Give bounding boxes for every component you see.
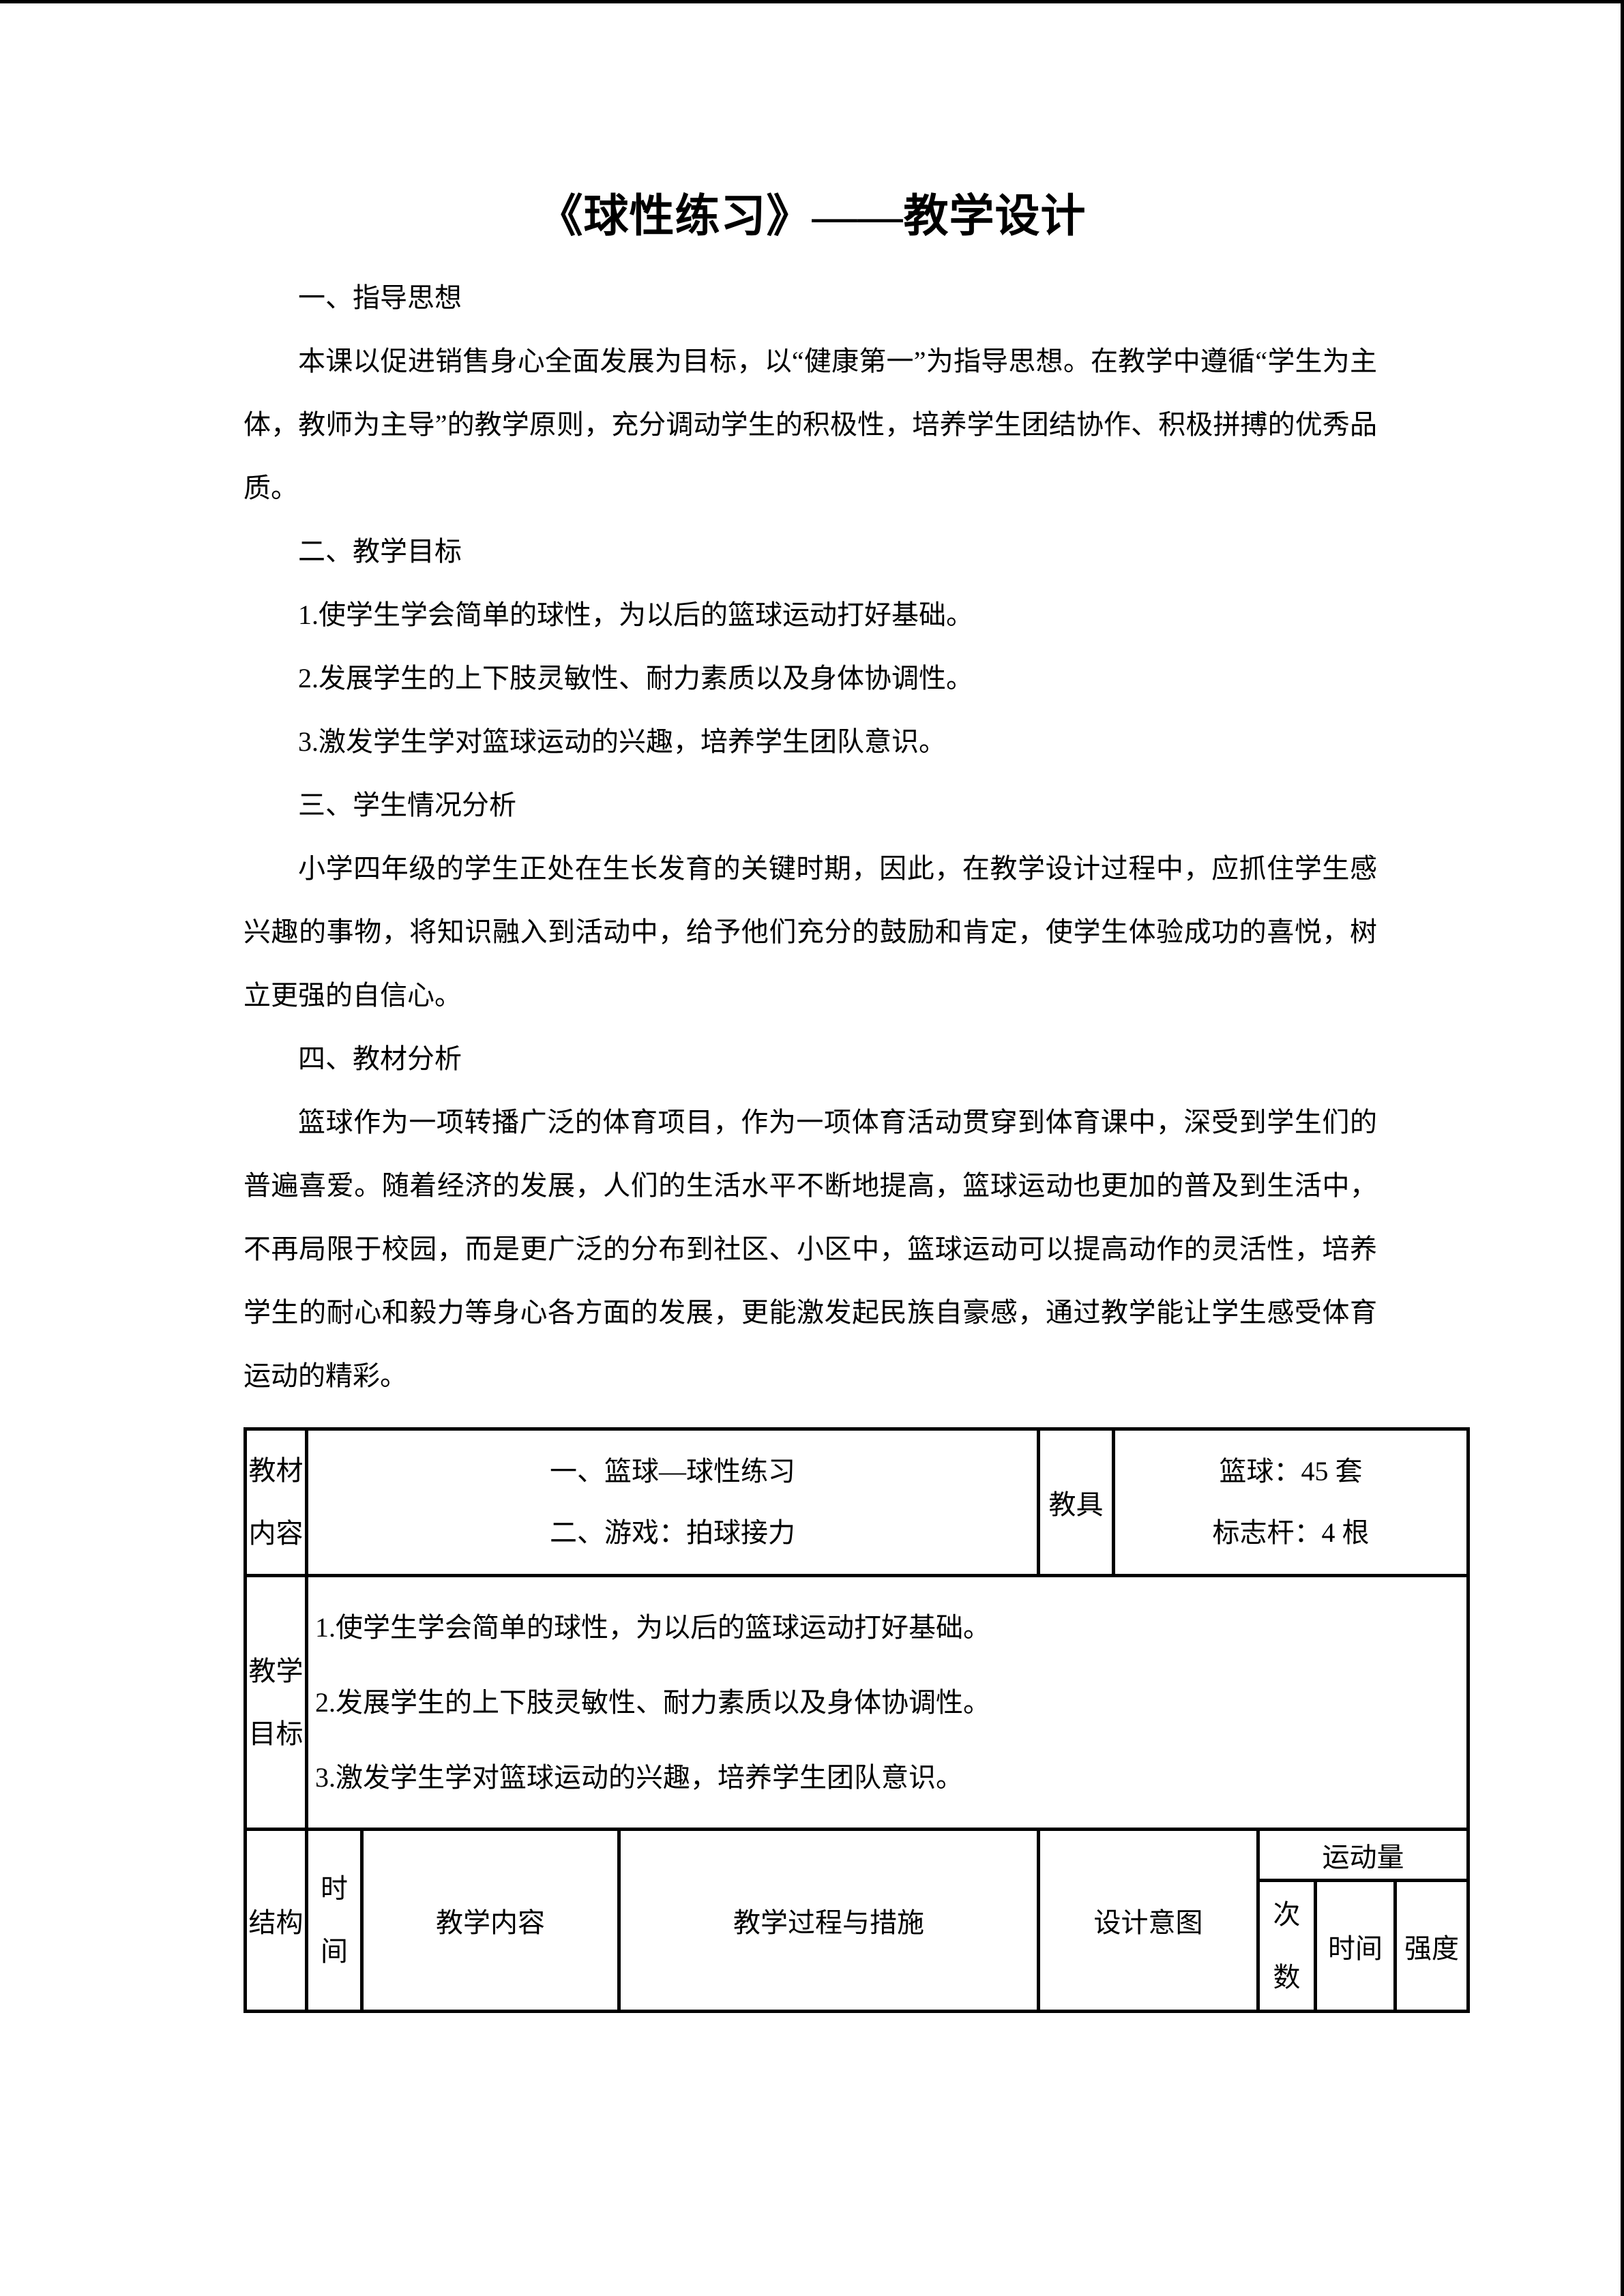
- document-body: 一、指导思想 本课以促进销售身心全面发展为目标，以“健康第一”为指导思想。在教学…: [243, 266, 1377, 1407]
- table-row-structure-header: 结构 时 间 教学内容 教学过程与措施 设计意图 运动量: [246, 1830, 1468, 1881]
- cell-structure-header: 结构: [246, 1830, 307, 2012]
- cell-material-label: 教材 内容: [246, 1429, 307, 1576]
- section-heading-4: 四、教材分析: [243, 1027, 1377, 1090]
- cell-aids-content: 篮球：45 套 标志杆：4 根: [1114, 1429, 1468, 1576]
- material-label-text: 教材 内容: [247, 1440, 305, 1565]
- structure-header-text: 结构: [249, 1907, 304, 1938]
- section-heading-1: 一、指导思想: [243, 266, 1377, 329]
- material-content-text: 一、篮球—球性练习 二、游戏：拍球接力: [308, 1441, 1037, 1564]
- cell-process-header: 教学过程与措施: [619, 1830, 1039, 2012]
- cell-intensity-header: 强度: [1396, 1881, 1468, 2012]
- cell-aids-label: 教具: [1039, 1429, 1114, 1576]
- section-2-goal-2: 2.发展学生的上下肢灵敏性、耐力素质以及身体协调性。: [243, 646, 1377, 710]
- section-2-goal-1: 1.使学生学会简单的球性，为以后的篮球运动打好基础。: [243, 583, 1377, 646]
- cell-exercise-load-header: 运动量: [1258, 1830, 1468, 1881]
- section-heading-3: 三、学生情况分析: [243, 773, 1377, 837]
- intensity-header-text: 强度: [1404, 1933, 1459, 1964]
- aids-label-text: 教具: [1049, 1489, 1104, 1520]
- lesson-plan-table: 教材 内容 一、篮球—球性练习 二、游戏：拍球接力 教具 篮球：45 套 标志杆…: [243, 1427, 1470, 2013]
- document-title: 《球性练习》——教学设计: [0, 190, 1624, 243]
- cell-time-header: 时 间: [307, 1830, 362, 2012]
- section-3-paragraph: 小学四年级的学生正处在生长发育的关键时期，因此，在教学设计过程中，应抓住学生感兴…: [243, 837, 1377, 1027]
- teaching-content-header-text: 教学内容: [436, 1907, 545, 1938]
- cell-goals-label: 教学 目标: [246, 1576, 307, 1830]
- section-4-paragraph: 篮球作为一项转播广泛的体育项目，作为一项体育活动贯穿到体育课中，深受到学生们的普…: [243, 1090, 1377, 1407]
- time2-header-text: 时间: [1328, 1933, 1383, 1964]
- cell-intent-header: 设计意图: [1039, 1830, 1258, 2012]
- process-header-text: 教学过程与措施: [733, 1907, 924, 1938]
- cell-material-content: 一、篮球—球性练习 二、游戏：拍球接力: [307, 1429, 1039, 1576]
- exercise-load-header-text: 运动量: [1323, 1842, 1404, 1873]
- section-2-goal-3: 3.激发学生学对篮球运动的兴趣，培养学生团队意识。: [243, 710, 1377, 773]
- document-page: 《球性练习》——教学设计 一、指导思想 本课以促进销售身心全面发展为目标，以“健…: [0, 0, 1624, 2296]
- scan-edge-top: [0, 0, 1624, 3]
- cell-time2-header: 时间: [1316, 1881, 1396, 2012]
- times-header-text: 次 数: [1260, 1883, 1314, 2009]
- goals-label-text: 教学 目标: [247, 1640, 305, 1765]
- section-heading-2: 二、教学目标: [243, 520, 1377, 583]
- goals-content-text: 1.使学生学会简单的球性，为以后的篮球运动打好基础。 2.发展学生的上下肢灵敏性…: [308, 1590, 1466, 1815]
- cell-teaching-content-header: 教学内容: [362, 1830, 619, 2012]
- cell-times-header: 次 数: [1258, 1881, 1316, 2012]
- intent-header-text: 设计意图: [1094, 1907, 1203, 1938]
- table-row-material: 教材 内容 一、篮球—球性练习 二、游戏：拍球接力 教具 篮球：45 套 标志杆…: [246, 1429, 1468, 1576]
- aids-content-text: 篮球：45 套 标志杆：4 根: [1115, 1441, 1466, 1564]
- section-1-paragraph: 本课以促进销售身心全面发展为目标，以“健康第一”为指导思想。在教学中遵循“学生为…: [243, 329, 1377, 520]
- table-row-goals: 教学 目标 1.使学生学会简单的球性，为以后的篮球运动打好基础。 2.发展学生的…: [246, 1576, 1468, 1830]
- time-header-text: 时 间: [308, 1858, 360, 1983]
- cell-goals-content: 1.使学生学会简单的球性，为以后的篮球运动打好基础。 2.发展学生的上下肢灵敏性…: [307, 1576, 1468, 1830]
- scan-edge-right: [1621, 0, 1624, 2296]
